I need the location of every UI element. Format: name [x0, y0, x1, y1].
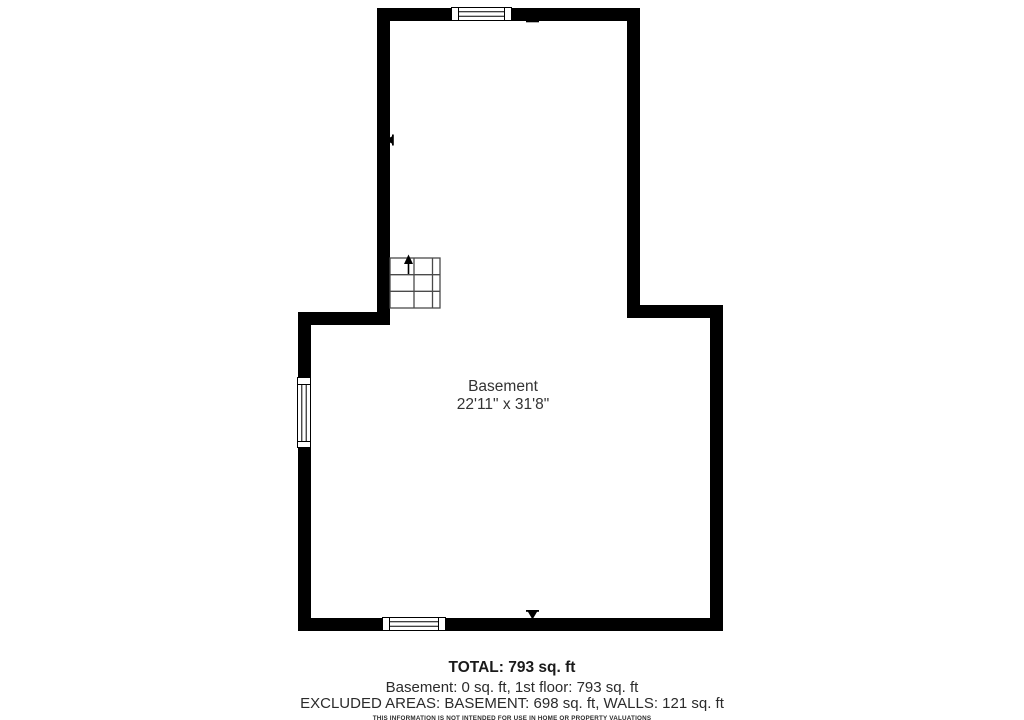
- floorplan-drawing: [0, 0, 1024, 720]
- wall-bottom: [298, 618, 723, 631]
- floor-areas-text: Basement: 0 sq. ft, 1st floor: 793 sq. f…: [0, 679, 1024, 696]
- window-bottom: [383, 618, 446, 631]
- staircase: [390, 258, 440, 308]
- disclaimer-text: THIS INFORMATION IS NOT INTENDED FOR USE…: [0, 715, 1024, 720]
- wall-upper-right: [627, 8, 640, 318]
- total-area-text: TOTAL: 793 sq. ft: [0, 658, 1024, 677]
- wall-step-left: [298, 312, 390, 325]
- floorplan-page: Basement 22'11" x 31'8" TOTAL: 793 sq. f…: [0, 0, 1024, 720]
- window-top: [452, 8, 512, 21]
- excluded-areas-text: EXCLUDED AREAS: BASEMENT: 698 sq. ft, WA…: [0, 696, 1024, 712]
- wall-step-right: [627, 305, 723, 318]
- walls: [298, 8, 723, 631]
- wall-lower-right: [710, 305, 723, 631]
- wall-lower-left: [298, 312, 311, 631]
- wall-upper-left: [377, 8, 390, 325]
- window-left: [298, 378, 311, 448]
- area-summary: TOTAL: 793 sq. ft Basement: 0 sq. ft, 1s…: [0, 658, 1024, 720]
